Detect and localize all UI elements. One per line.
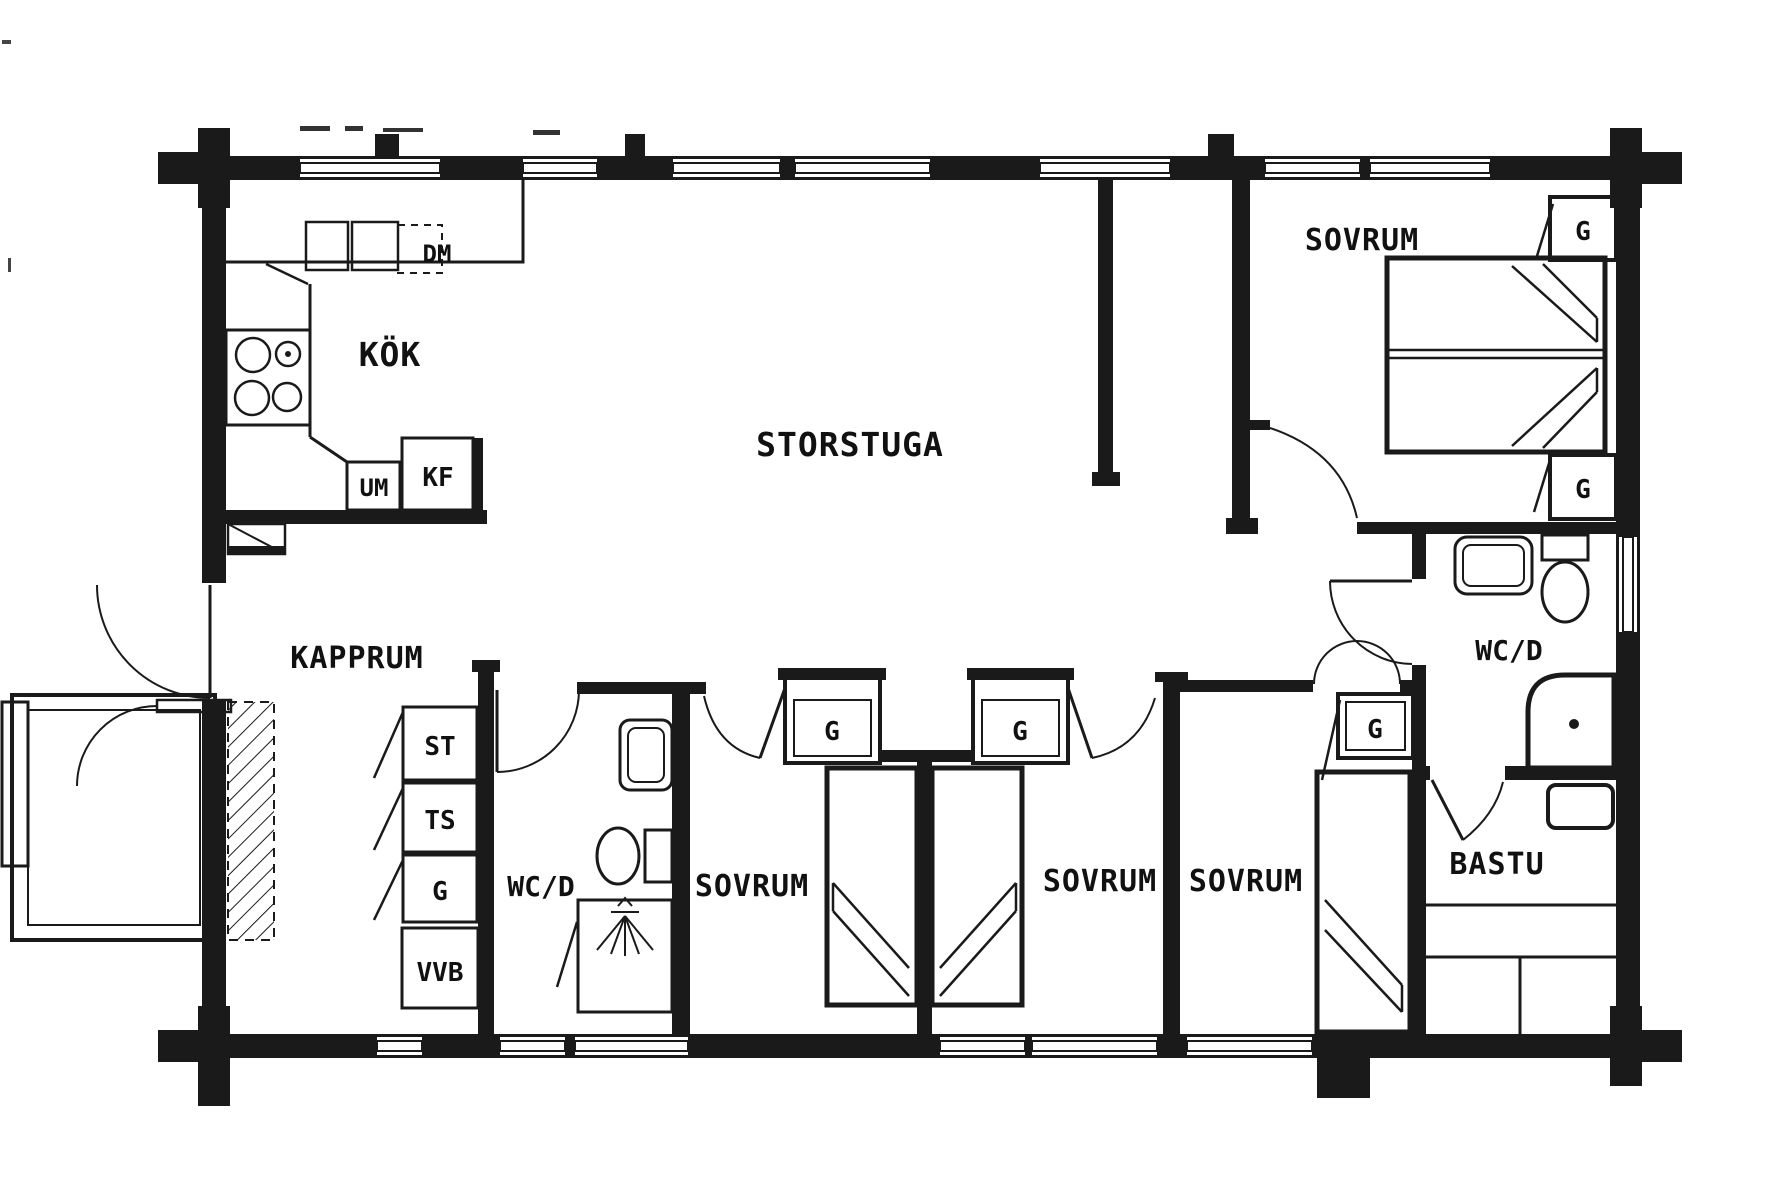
closet-label-g-ne-bottom: G (1575, 475, 1591, 505)
room-label-wcd-left: WC/D (507, 870, 574, 903)
room-label-kapprum: KAPPRUM (290, 641, 423, 676)
porch-deck-inner (28, 710, 200, 925)
room-label-wcd-right: WC/D (1475, 634, 1542, 667)
closet-label-g1: G (824, 717, 840, 747)
window (1616, 537, 1640, 632)
door-arc (497, 690, 579, 772)
entry-door-arc (97, 585, 210, 698)
window (1265, 156, 1360, 180)
log-end (1208, 134, 1234, 158)
room-label-sovrum-3: SOVRUM (1189, 864, 1303, 899)
shower (557, 898, 672, 1012)
shower (1528, 675, 1614, 768)
appliance-label-dm: DM (423, 240, 452, 268)
log-end (1638, 1030, 1682, 1062)
floor-plan-drawing: KÖK STORSTUGA SOVRUM KAPPRUM WC/D SOVRUM… (0, 0, 1770, 1181)
window (500, 1034, 565, 1058)
room-label-kok: KÖK (359, 334, 422, 374)
corner-cabinet (266, 264, 308, 284)
door-leaf (1250, 420, 1270, 430)
bed (1317, 772, 1410, 1032)
sovrum-2 (932, 677, 1155, 1005)
log-end (198, 1006, 230, 1106)
entry-door-opening (200, 583, 228, 700)
toilet-tank (645, 830, 672, 882)
log-end (375, 134, 399, 158)
stove-burner (273, 383, 301, 411)
shower-door-leaf (557, 922, 577, 987)
window (300, 156, 440, 180)
counter-corner (310, 437, 347, 462)
shower-drain (1569, 719, 1579, 729)
stove-burner (236, 338, 270, 372)
entry-porch (2, 585, 231, 940)
log-end (198, 128, 230, 208)
closet-door-leaf (374, 788, 403, 850)
door-leaf (1432, 780, 1463, 840)
door-arc (1463, 782, 1503, 840)
closet-label-g-ne-top: G (1575, 217, 1591, 247)
wcd-left (497, 690, 672, 1012)
toilet-tank (1542, 535, 1588, 560)
toilet (1542, 535, 1588, 622)
porch-landing (2, 702, 28, 866)
appliance-label-kf: KF (422, 463, 453, 493)
room-label-storstuga: STORSTUGA (756, 425, 944, 464)
bastu-fittings (1426, 780, 1616, 1034)
window (673, 156, 780, 180)
closet-door-leaf (374, 860, 403, 920)
log-end (158, 1030, 204, 1062)
window (1032, 1034, 1157, 1058)
door-leaf (1068, 688, 1092, 758)
porch-deck (12, 695, 215, 940)
room-label-bastu: BASTU (1449, 847, 1544, 882)
appliance-label-um: UM (360, 474, 389, 502)
log-end (158, 152, 204, 184)
toilet-bowl (1542, 562, 1588, 622)
window (940, 1034, 1025, 1058)
coat-rack (228, 702, 274, 940)
stove-burner (235, 381, 269, 415)
sovrum-1 (704, 677, 917, 1005)
window (1370, 156, 1490, 180)
porch-door-arc (77, 706, 157, 786)
log-end (1638, 152, 1682, 184)
closet-label-vvb: VVB (417, 958, 464, 988)
toilet (597, 828, 672, 884)
log-end (1610, 1006, 1642, 1086)
floor-plan-page: KÖK STORSTUGA SOVRUM KAPPRUM WC/D SOVRUM… (0, 0, 1770, 1181)
room-label-sovrum-ne: SOVRUM (1305, 223, 1419, 258)
door-arc (704, 696, 760, 758)
closet-label-g: G (432, 877, 448, 907)
washbasin-bowl (1463, 545, 1524, 586)
window (1040, 156, 1170, 180)
door-arc (1314, 641, 1400, 684)
window (523, 156, 597, 180)
sovrum-3 (1314, 641, 1413, 1032)
door-arc (1092, 698, 1155, 758)
door-leaf (760, 688, 785, 758)
room-label-sovrum-2: SOVRUM (1043, 864, 1157, 899)
shower-spray-icon (597, 898, 653, 956)
sauna-benches (1426, 905, 1616, 1034)
closet-label-g3: G (1367, 715, 1383, 745)
stove (226, 330, 310, 425)
door-arc (1270, 428, 1357, 518)
toilet-bowl (597, 828, 639, 884)
window (377, 1034, 422, 1058)
log-end (625, 134, 645, 158)
entry-shelf (228, 524, 285, 554)
door-arc (1330, 581, 1412, 664)
window (1187, 1034, 1312, 1058)
bed (827, 768, 917, 1005)
log-end (1317, 1056, 1370, 1098)
room-label-sovrum-1: SOVRUM (695, 869, 809, 904)
window (575, 1034, 688, 1058)
sauna-heater (1548, 785, 1613, 828)
closet-door-leaf (1534, 460, 1550, 512)
closet-door-leaf (374, 712, 403, 778)
window (795, 156, 930, 180)
closet-label-g2: G (1012, 717, 1028, 747)
windows (300, 156, 1640, 1058)
washbasin-bowl (628, 728, 664, 782)
twin-beds (1387, 258, 1605, 452)
closet-label-ts: TS (424, 806, 455, 836)
bed (932, 768, 1022, 1005)
closet-label-st: ST (424, 732, 455, 762)
